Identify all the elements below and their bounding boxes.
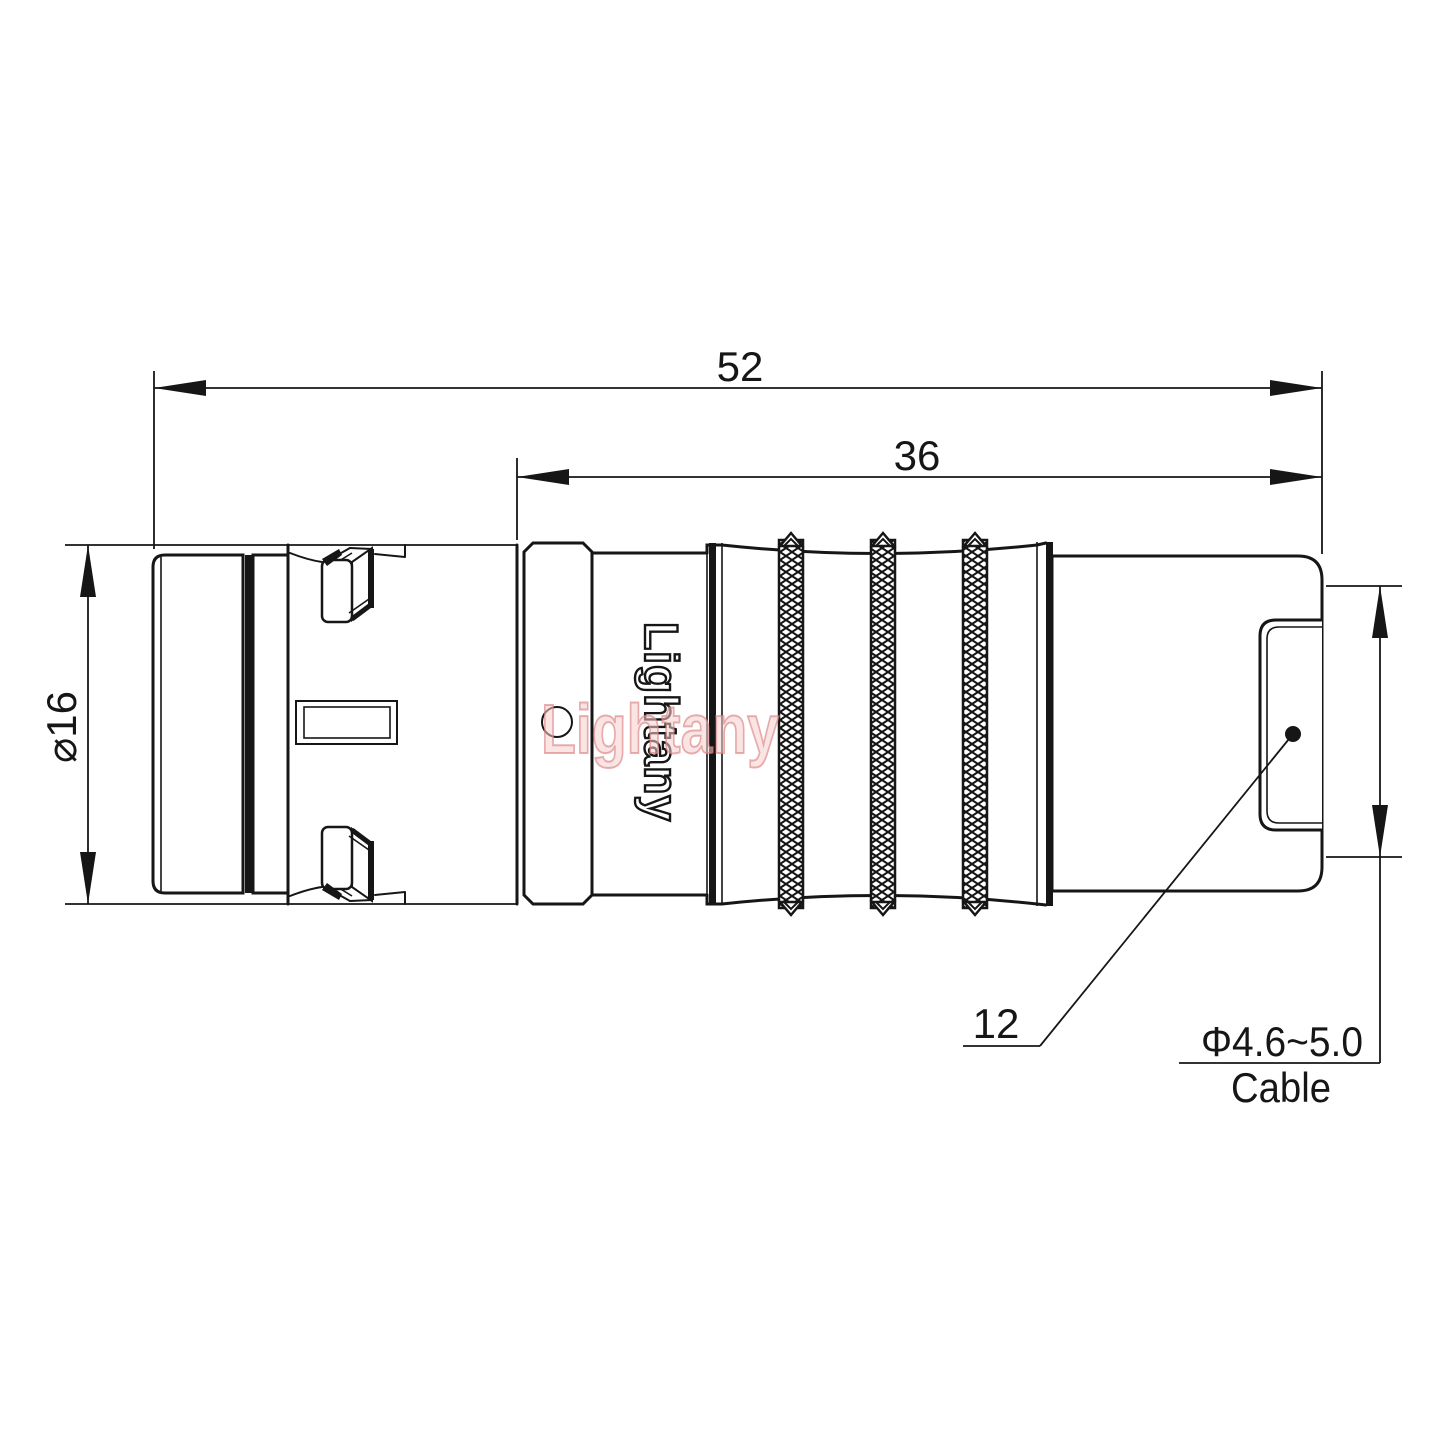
- arrowhead-right: [1270, 380, 1322, 396]
- dim-label-body-diameter: ⌀16: [38, 691, 85, 763]
- drawing-canvas: 52 36 ⌀16: [0, 0, 1440, 1440]
- locking-clip-top: [322, 548, 372, 622]
- arrowhead-up: [80, 545, 96, 597]
- dim-label-overall-length: 52: [717, 343, 764, 390]
- connector-technical-drawing: 52 36 ⌀16: [0, 0, 1440, 1440]
- dim-label-cable-word: Cable: [1231, 1064, 1331, 1111]
- arrowhead-left: [154, 380, 206, 396]
- window-cutout: [296, 701, 397, 744]
- cable-boot: [1260, 620, 1322, 830]
- dim-label-boot-ref: 12: [973, 1000, 1020, 1047]
- dim-label-rear-length: 36: [894, 432, 941, 479]
- locking-clip-bottom: [322, 827, 372, 901]
- front-shell: [153, 555, 288, 893]
- latch-section: [288, 545, 517, 904]
- dimension-rear-length: 36: [517, 432, 1322, 540]
- dimension-overall-length: 52: [154, 343, 1322, 554]
- arrowhead-right: [1270, 469, 1322, 485]
- knurl-band-2: [871, 533, 895, 915]
- watermark-text: Lightany: [541, 690, 779, 768]
- arrowhead-up: [1372, 586, 1388, 638]
- rear-cylinder: [1052, 556, 1322, 891]
- knurl-band-1: [779, 533, 803, 915]
- arrowhead-down: [1372, 805, 1388, 857]
- knurl-band-3: [963, 533, 987, 915]
- dim-label-cable-range: Φ4.6~5.0: [1201, 1018, 1363, 1065]
- arrowhead-left: [517, 469, 569, 485]
- arrowhead-down: [80, 852, 96, 904]
